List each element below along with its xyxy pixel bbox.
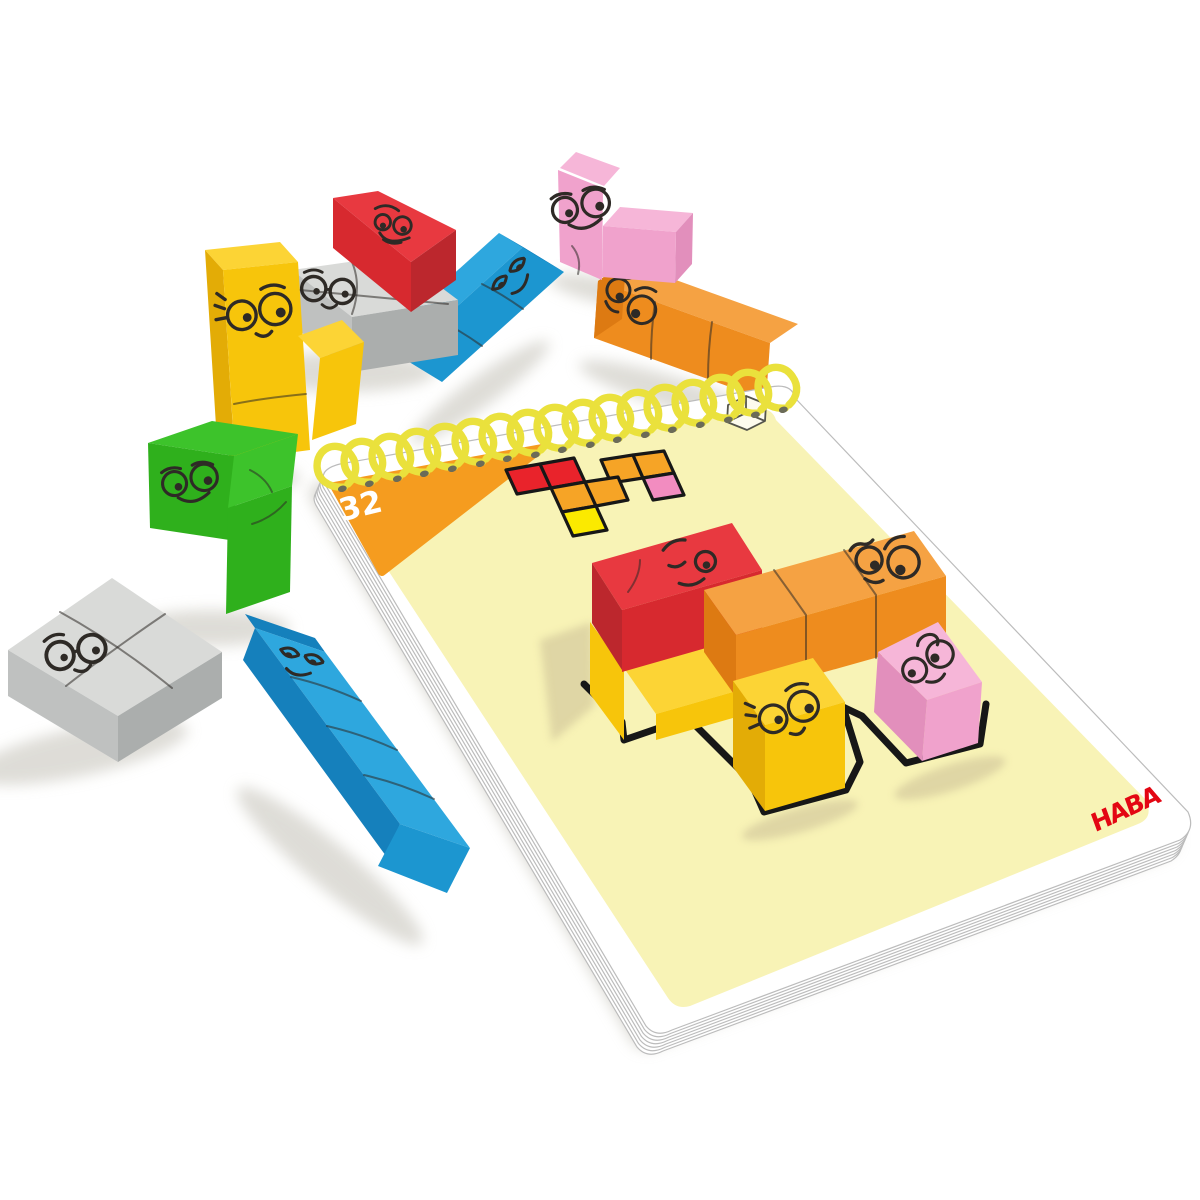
scene: 32 HABA xyxy=(0,0,1200,1200)
on-card-yellow-face-cube xyxy=(733,658,845,811)
product-photo: 32 HABA xyxy=(0,0,1200,1200)
